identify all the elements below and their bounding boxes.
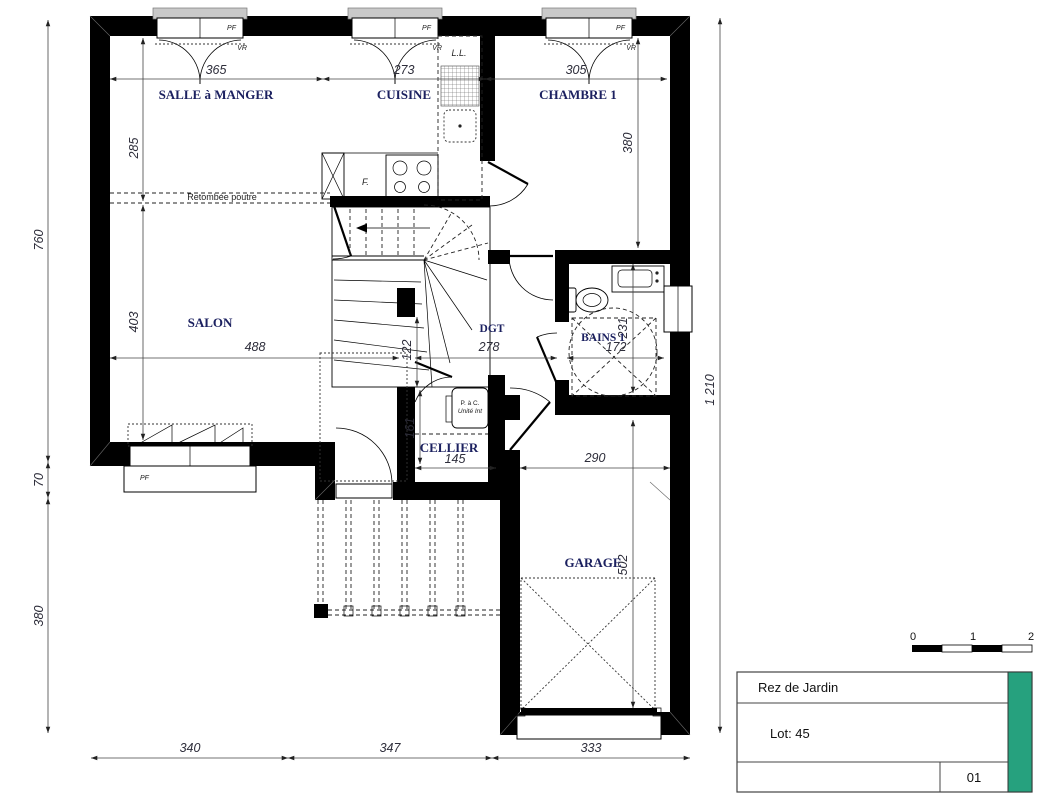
scale-tick-0: 0 [910, 631, 916, 643]
pac-label-1: P. à C. [460, 400, 479, 407]
room-dining-label: SALLE à MANGER [159, 87, 274, 102]
dim-bottom-347: 347 [380, 741, 402, 755]
scale-tick-2: 2 [1028, 631, 1034, 643]
appliance-f-label: F. [362, 177, 369, 187]
dim-passage: 122 [400, 340, 414, 361]
room-cellar-label: CELLIER [420, 440, 479, 455]
room-garage-label: GARAGE [564, 555, 621, 570]
dim-living-width: 488 [245, 340, 266, 354]
shutter-vr-label: VR [432, 45, 442, 52]
window-pf-label: PF [422, 25, 432, 32]
title-block-sheet-number: 01 [967, 770, 981, 785]
floor-plan-sheet: PF VR PF VR PF VR PF [0, 0, 1041, 800]
floor-plan-svg: PF VR PF VR PF VR PF [0, 0, 1041, 800]
window-dining: PF VR [153, 8, 247, 84]
dim-living-height: 403 [127, 312, 141, 333]
window-bath [664, 286, 692, 332]
scale-tick-1: 1 [970, 631, 976, 643]
scale-bar: 0 1 2 [910, 631, 1034, 652]
title-block-accent-strip [1008, 672, 1032, 792]
dim-kitchen-width: 273 [393, 63, 415, 77]
title-block: Rez de Jardin Lot: 45 01 [737, 672, 1032, 792]
shutter-vr-label: VR [626, 45, 636, 52]
window-pf-label: PF [227, 25, 237, 32]
dim-right-total: 1 210 [703, 374, 717, 405]
corner-marks [90, 16, 690, 735]
dim-garage-width: 290 [584, 451, 606, 465]
beam-annotation: Retombée poutre [110, 192, 407, 481]
kitchen-fixtures: L.L. F. [322, 36, 482, 200]
title-block-title: Rez de Jardin [758, 680, 838, 695]
dimensions: 365 273 305 285 403 380 760 70 380 1 210… [32, 18, 720, 758]
room-bath-label: BAINS 1 [581, 332, 625, 344]
garage-door [517, 578, 661, 739]
dim-hall-width: 278 [478, 340, 500, 354]
window-pf-label: PF [616, 25, 626, 32]
dim-left-760: 760 [32, 230, 46, 251]
room-bedroom-label: CHAMBRE 1 [539, 87, 617, 102]
dim-bedroom-width: 305 [566, 63, 587, 77]
dim-left-70: 70 [32, 473, 46, 487]
window-pf-label: PF [140, 475, 150, 482]
room-kitchen-label: CUISINE [377, 87, 431, 102]
bath-fixtures [562, 266, 664, 396]
room-living-label: SALON [188, 315, 233, 330]
dim-dining-height: 285 [127, 138, 141, 160]
room-hall-label: DGT [480, 323, 505, 335]
heat-pump-unit: P. à C. Unité Int [415, 388, 488, 434]
title-block-lot: Lot: 45 [770, 726, 810, 741]
shutter-vr-label: VR [237, 45, 247, 52]
dim-left-380: 380 [32, 606, 46, 627]
washer-label: L.L. [451, 48, 466, 58]
window-living-sliding: PF [124, 424, 256, 492]
pergola [314, 500, 502, 618]
beam-label: Retombée poutre [187, 192, 257, 202]
window-bedroom: PF VR [542, 8, 636, 84]
dim-bottom-340: 340 [180, 741, 201, 755]
dim-bedroom-height: 380 [621, 133, 635, 154]
pac-label-2: Unité Int [458, 408, 483, 415]
walls [90, 16, 690, 735]
dim-bottom-333: 333 [581, 741, 602, 755]
dim-dining-width: 365 [206, 63, 227, 77]
dim-cellar-height: 161 [403, 418, 417, 439]
